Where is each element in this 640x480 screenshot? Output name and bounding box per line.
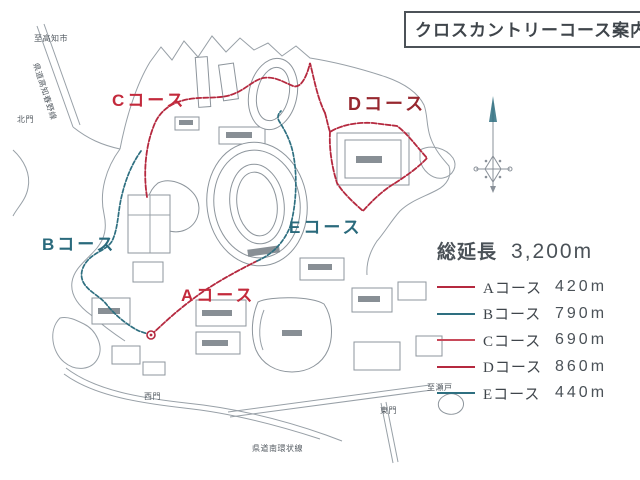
legend-row-a: Aコース 420m <box>437 274 633 301</box>
course-legend: 総延長 3,200m Aコース 420m Bコース 790m Cコース 690m… <box>437 237 633 407</box>
north-gate-label: 北門 <box>17 115 34 124</box>
legend-row-b: Bコース 790m <box>437 301 633 328</box>
course-e-swatch <box>437 392 475 394</box>
course-c-swatch <box>437 339 475 341</box>
course-b-distance: 790m <box>555 305 607 323</box>
course-c-legend-label: Cコース <box>483 330 555 351</box>
course-d-label: Dコース <box>348 94 426 114</box>
total-length-label: 総延長 <box>437 237 497 264</box>
course-a-label: Aコース <box>181 286 255 305</box>
course-d-distance: 860m <box>555 358 607 376</box>
total-length: 総延長 3,200m <box>437 237 633 264</box>
west-gate-label: 西門 <box>144 392 161 401</box>
course-b-swatch <box>437 313 475 315</box>
road-south-ring-label: 県道南環状線 <box>252 443 303 453</box>
to-kochi-label: 至高知市 <box>34 33 68 43</box>
legend-row-e: Eコース 440m <box>437 380 633 407</box>
course-b-label: Bコース <box>42 235 116 254</box>
legend-row-c: Cコース 690m <box>437 327 633 354</box>
legend-row-d: Dコース 860m <box>437 354 633 381</box>
course-b-legend-label: Bコース <box>483 303 555 324</box>
course-c-label: Cコース <box>112 91 186 110</box>
course-e-legend-label: Eコース <box>483 383 555 404</box>
page-title: クロスカントリーコース案内図 <box>404 11 640 48</box>
course-e-label: Eコース <box>289 218 363 237</box>
start-finish-dot <box>150 334 153 337</box>
total-length-value: 3,200m <box>511 240 593 264</box>
road-kochi-haruno-label: 県道高知春野線 <box>31 62 59 122</box>
course-d-swatch <box>437 366 475 368</box>
course-c-distance: 690m <box>555 331 607 349</box>
course-a-legend-label: Aコース <box>483 277 555 298</box>
course-a-distance: 420m <box>555 278 607 296</box>
east-gate-label: 東門 <box>380 405 397 415</box>
course-a-swatch <box>437 286 475 288</box>
course-e-distance: 440m <box>555 384 607 402</box>
compass-icon <box>474 96 512 193</box>
course-d-legend-label: Dコース <box>483 356 555 377</box>
